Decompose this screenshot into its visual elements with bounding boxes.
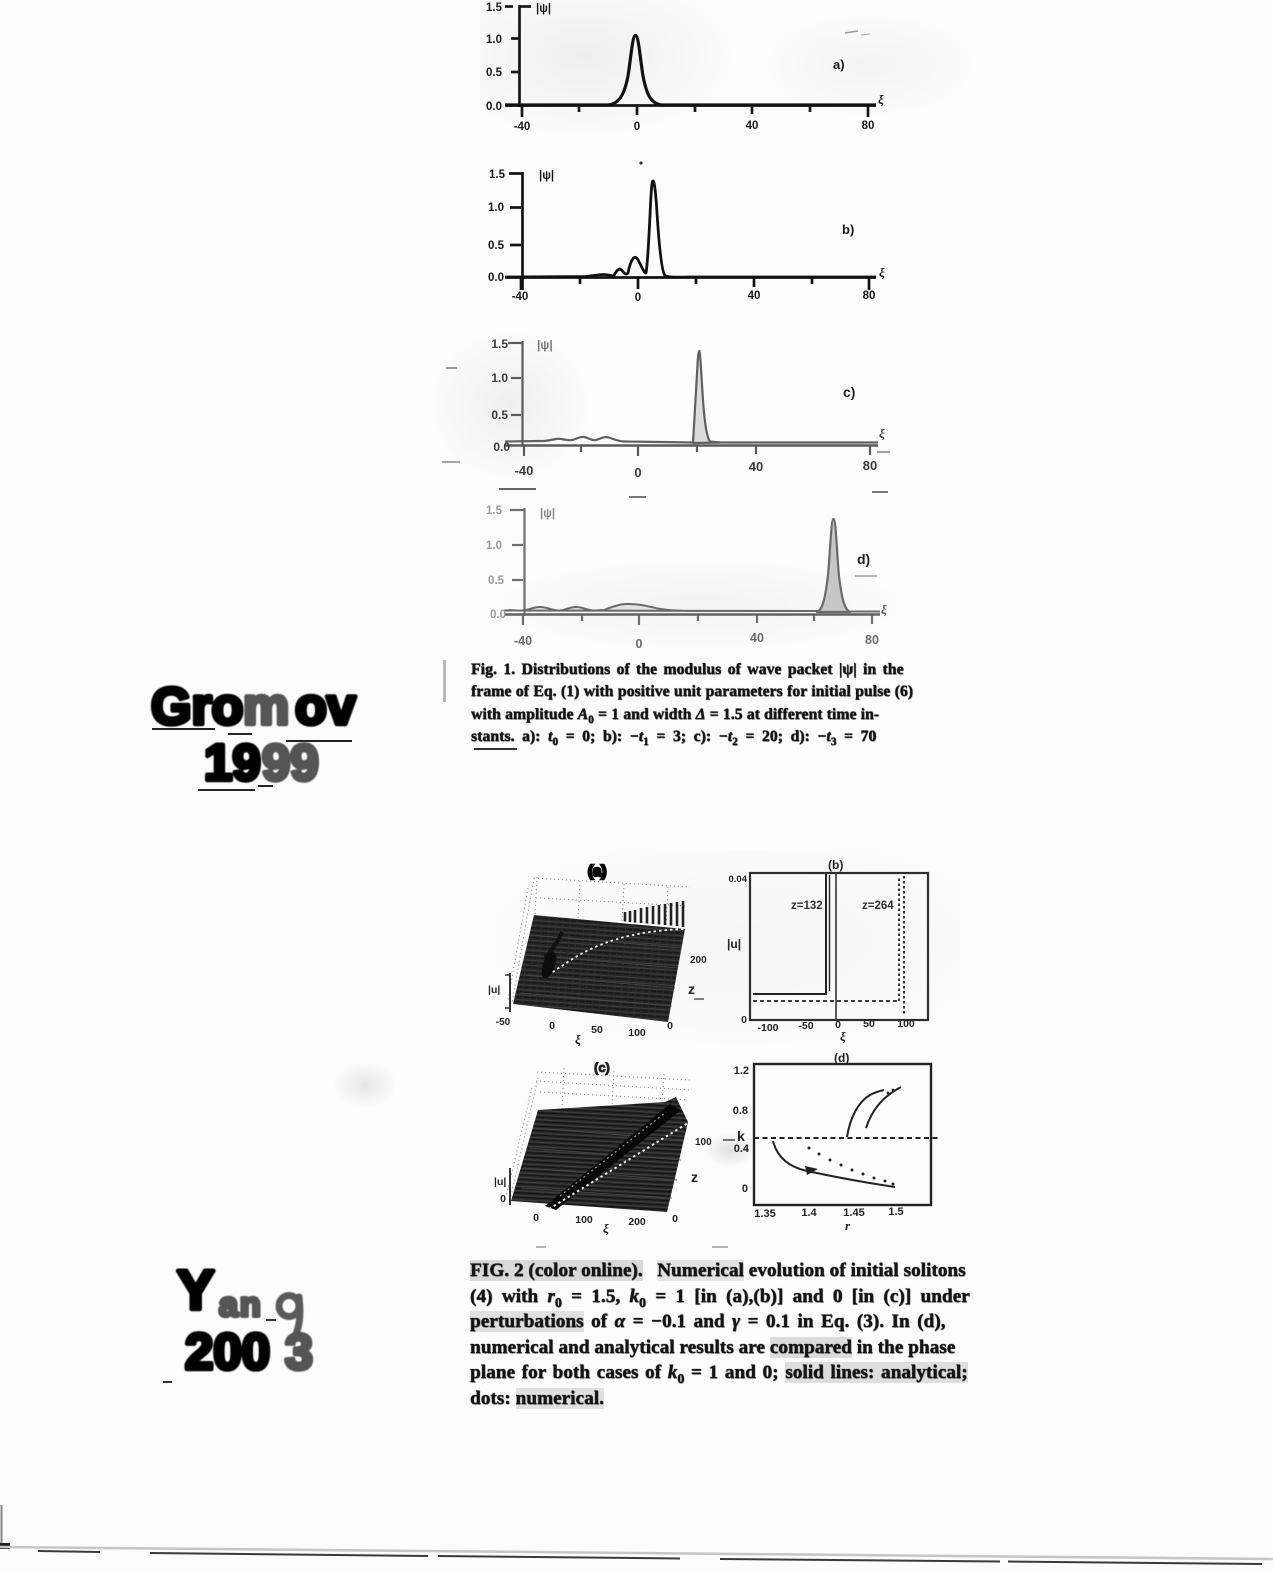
svg-text:0: 0	[634, 121, 640, 133]
svg-text:1.0: 1.0	[488, 202, 504, 214]
svg-text:-50: -50	[496, 1017, 511, 1028]
svg-text:1.5: 1.5	[888, 1206, 903, 1218]
svg-text:0.04: 0.04	[729, 874, 748, 885]
svg-text:-100: -100	[757, 1022, 778, 1034]
svg-text:ξ: ξ	[879, 265, 885, 280]
svg-text:1.0: 1.0	[486, 540, 502, 552]
svg-text:-40: -40	[514, 121, 531, 133]
svg-text:200: 200	[185, 1323, 270, 1380]
svg-text:3: 3	[285, 1324, 313, 1380]
svg-text:|ψ|: |ψ|	[540, 508, 555, 520]
svg-text:0: 0	[533, 1212, 539, 1224]
svg-text:0: 0	[672, 1213, 678, 1225]
svg-text:0: 0	[635, 292, 641, 304]
svg-text:0.0: 0.0	[493, 440, 510, 454]
svg-text:m: m	[243, 678, 289, 736]
svg-text:k: k	[737, 1128, 745, 1144]
svg-text:80: 80	[862, 120, 875, 132]
svg-text:0: 0	[500, 1193, 506, 1205]
svg-text:40: 40	[749, 459, 763, 474]
svg-text:0.5: 0.5	[491, 408, 508, 422]
svg-text:0.5: 0.5	[488, 240, 505, 252]
svg-text:-40: -40	[515, 463, 534, 478]
svg-text:100: 100	[628, 1027, 646, 1039]
svg-text:50: 50	[591, 1024, 603, 1036]
svg-text:0: 0	[741, 1014, 747, 1026]
svg-text:(a): (a)	[588, 863, 606, 880]
svg-text:0.0: 0.0	[490, 609, 506, 621]
svg-text:1.5: 1.5	[486, 505, 503, 517]
svg-text:40: 40	[748, 290, 761, 302]
svg-text:-40: -40	[512, 291, 529, 303]
svg-text:ξ: ξ	[840, 1029, 846, 1044]
svg-text:40: 40	[750, 631, 764, 645]
svg-text:0.0: 0.0	[488, 272, 504, 284]
svg-text:1.4: 1.4	[801, 1207, 817, 1219]
svg-text:(d): (d)	[834, 1051, 849, 1065]
svg-text:1.0: 1.0	[486, 34, 502, 46]
svg-text:200: 200	[628, 1216, 646, 1228]
svg-text:z: z	[688, 981, 695, 997]
svg-text:80: 80	[863, 290, 876, 302]
svg-text:|ψ|: |ψ|	[537, 338, 553, 352]
svg-text:0: 0	[636, 637, 643, 650]
svg-text:1.5: 1.5	[491, 337, 508, 351]
svg-text:ξ: ξ	[575, 1032, 581, 1047]
svg-text:1.0: 1.0	[491, 371, 508, 385]
svg-text:d): d)	[857, 551, 870, 567]
svg-text:(c): (c)	[594, 1060, 610, 1075]
svg-text:ξ: ξ	[879, 426, 885, 441]
svg-text:z=132: z=132	[791, 900, 823, 912]
svg-text:0.8: 0.8	[733, 1105, 748, 1117]
svg-text:1.5: 1.5	[489, 169, 506, 181]
svg-text:99: 99	[262, 734, 319, 791]
svg-text:c): c)	[843, 384, 855, 400]
svg-text:|u|: |u|	[494, 1176, 506, 1188]
svg-text:1.5: 1.5	[486, 2, 503, 14]
svg-text:0: 0	[742, 1183, 748, 1195]
svg-text:ξ: ξ	[878, 92, 884, 107]
svg-text:r: r	[845, 1218, 851, 1233]
svg-text:b): b)	[842, 222, 854, 237]
svg-text:0: 0	[667, 1020, 673, 1032]
svg-text:ov: ov	[295, 678, 356, 736]
svg-text:z=264: z=264	[862, 900, 894, 912]
svg-text:-40: -40	[514, 634, 532, 648]
svg-text:(b): (b)	[828, 858, 843, 872]
svg-text:200: 200	[690, 955, 707, 966]
svg-text:100: 100	[695, 1137, 712, 1148]
svg-text:100: 100	[575, 1214, 593, 1226]
svg-text:80: 80	[863, 458, 877, 473]
svg-text:0.4: 0.4	[734, 1143, 750, 1155]
svg-text:ξ: ξ	[603, 1221, 609, 1236]
svg-text:0: 0	[549, 1020, 555, 1032]
svg-text:|ψ|: |ψ|	[536, 3, 551, 15]
svg-text:|u|: |u|	[727, 937, 741, 951]
svg-text:an: an	[219, 1286, 263, 1324]
svg-text:Y: Y	[177, 1258, 214, 1321]
svg-text:19: 19	[204, 734, 261, 791]
svg-text:|u|: |u|	[488, 984, 500, 996]
svg-text:0.0: 0.0	[486, 101, 502, 113]
svg-text:|ψ|: |ψ|	[539, 170, 554, 182]
svg-text:z: z	[691, 1169, 698, 1185]
svg-text:1.35: 1.35	[754, 1208, 775, 1220]
svg-text:50: 50	[863, 1018, 875, 1030]
svg-text:0.5: 0.5	[486, 67, 503, 79]
svg-text:Gro: Gro	[151, 678, 243, 736]
svg-text:40: 40	[746, 120, 759, 132]
svg-text:a): a)	[833, 57, 845, 72]
svg-text:100: 100	[897, 1018, 915, 1030]
svg-text:0: 0	[634, 465, 641, 480]
svg-text:1.2: 1.2	[734, 1065, 749, 1077]
svg-text:-50: -50	[798, 1020, 813, 1032]
svg-text:ξ: ξ	[881, 602, 887, 617]
svg-text:80: 80	[865, 633, 879, 647]
svg-text:0.5: 0.5	[488, 575, 505, 587]
